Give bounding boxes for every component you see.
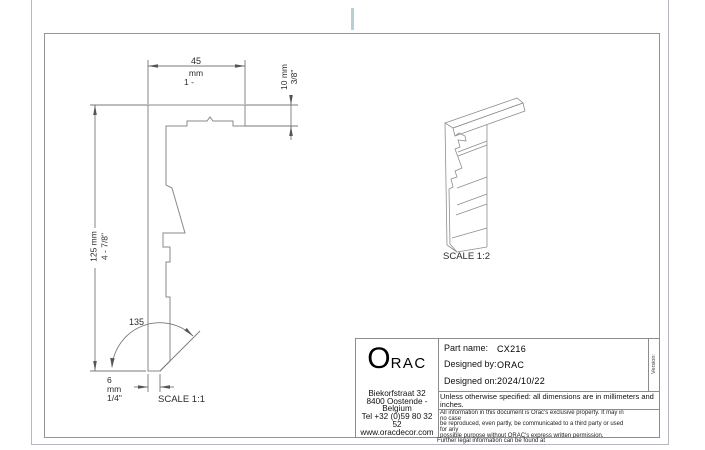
dim-width-value: 45 xyxy=(181,56,211,66)
units-note-box: Unless otherwise specified: all dimensio… xyxy=(438,391,659,410)
angle-value: 135 xyxy=(129,317,155,327)
part-name-value: CX216 xyxy=(497,344,526,354)
part-name-label: Part name: xyxy=(444,343,488,353)
address-line website: www.oracdecor.com xyxy=(356,429,438,437)
logo-letters-rac: RAC xyxy=(391,355,427,372)
dim-width-inches: 1 - xyxy=(174,77,204,87)
company-address: Biekorfstraat 32 8400 Oostende - Belgium… xyxy=(356,390,438,436)
logo-letter-o: O xyxy=(367,342,390,375)
designed-on-value: 2024/10/22 xyxy=(497,376,545,386)
legal-more-text: Further legal information can be found a… xyxy=(437,438,545,444)
designed-on-label: Designed on: xyxy=(444,376,497,386)
dimension-lines xyxy=(90,60,298,392)
legal-line: All information in this document is Orac… xyxy=(438,410,659,417)
front-view-profile xyxy=(148,105,245,371)
company-column: ORAC Biekorfstraat 32 8400 Oostende - Be… xyxy=(356,339,439,437)
part-info-box: Part name: CX216 Designed by: ORAC Desig… xyxy=(439,339,659,392)
designed-by-value: ORAC xyxy=(497,360,524,370)
iso-view-scale-label: SCALE 1:2 xyxy=(443,251,490,262)
dim-height-label: 125 mm 4 - 7/8" xyxy=(89,216,110,278)
angle-arc xyxy=(112,323,193,367)
designed-by-label: Designed by: xyxy=(444,359,497,369)
title-block: ORAC Biekorfstraat 32 8400 Oostende - Be… xyxy=(355,338,660,438)
drawing-sheet-viewer: 45 mm 1 - 10 mm 3/8" 125 mm 4 - 7/8" 135… xyxy=(0,0,705,450)
units-note-text: Unless otherwise specified: all dimensio… xyxy=(438,392,659,410)
dim-thickness-label: 10 mm 3/8" xyxy=(279,57,299,97)
iso-top-face xyxy=(445,98,523,128)
orac-logo: ORAC xyxy=(356,344,438,374)
dim-bottom-label: 6 mm 1/4" xyxy=(107,376,141,403)
version-strip: Version: xyxy=(648,339,659,391)
iso-view-sketch xyxy=(445,98,525,252)
front-view-scale-label: SCALE 1:1 xyxy=(158,394,205,405)
profile-outline xyxy=(148,105,245,371)
version-label: Version: xyxy=(651,348,657,380)
legal-note-box: All information in this document is Orac… xyxy=(438,409,659,438)
iso-section-edge xyxy=(449,133,466,252)
